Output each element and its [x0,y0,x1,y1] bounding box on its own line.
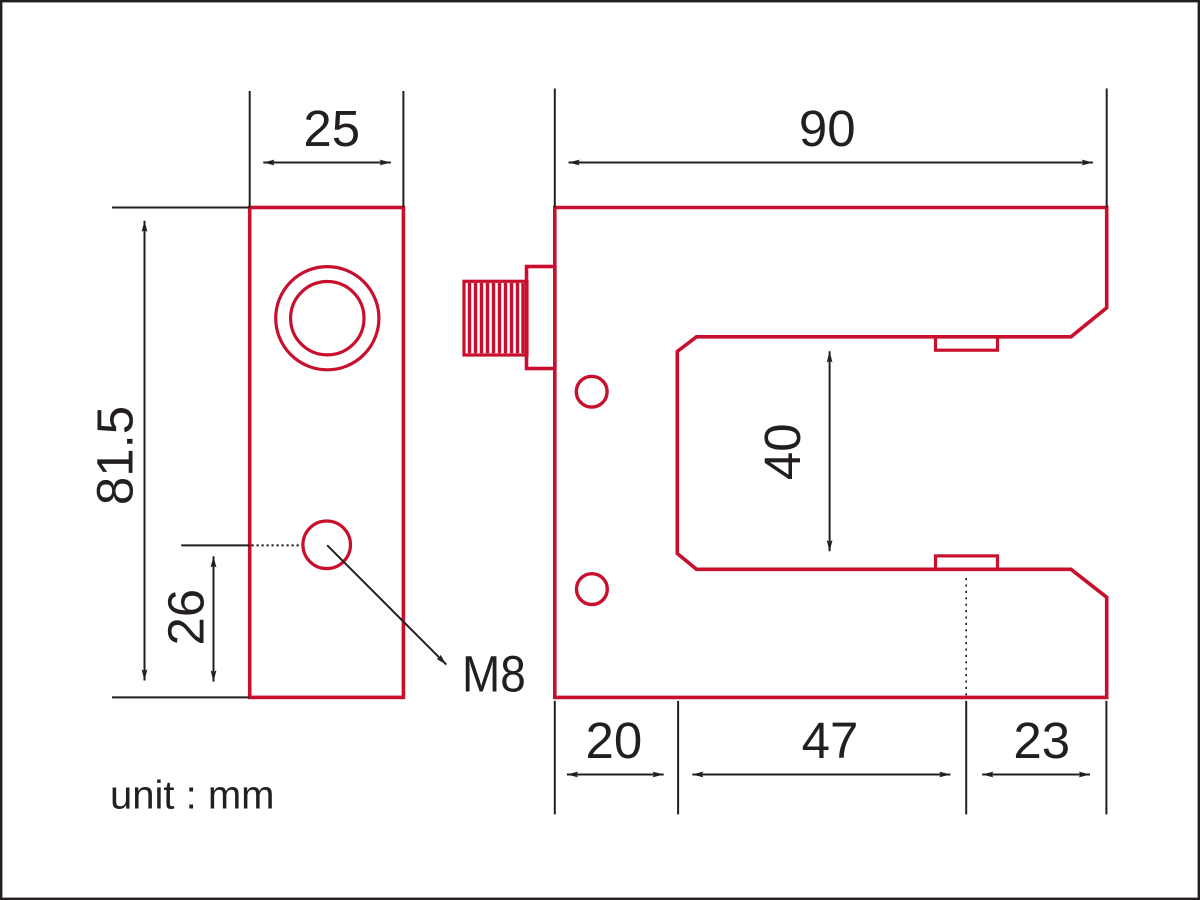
svg-text:M8: M8 [462,646,526,703]
svg-text:25: 25 [303,100,360,157]
svg-text:47: 47 [802,712,859,769]
svg-text:40: 40 [754,423,811,480]
svg-text:unit : mm: unit : mm [110,773,274,817]
svg-text:90: 90 [799,100,856,157]
svg-text:20: 20 [586,712,643,769]
svg-text:81.5: 81.5 [87,406,144,505]
svg-text:23: 23 [1013,712,1070,769]
svg-text:26: 26 [157,589,214,646]
